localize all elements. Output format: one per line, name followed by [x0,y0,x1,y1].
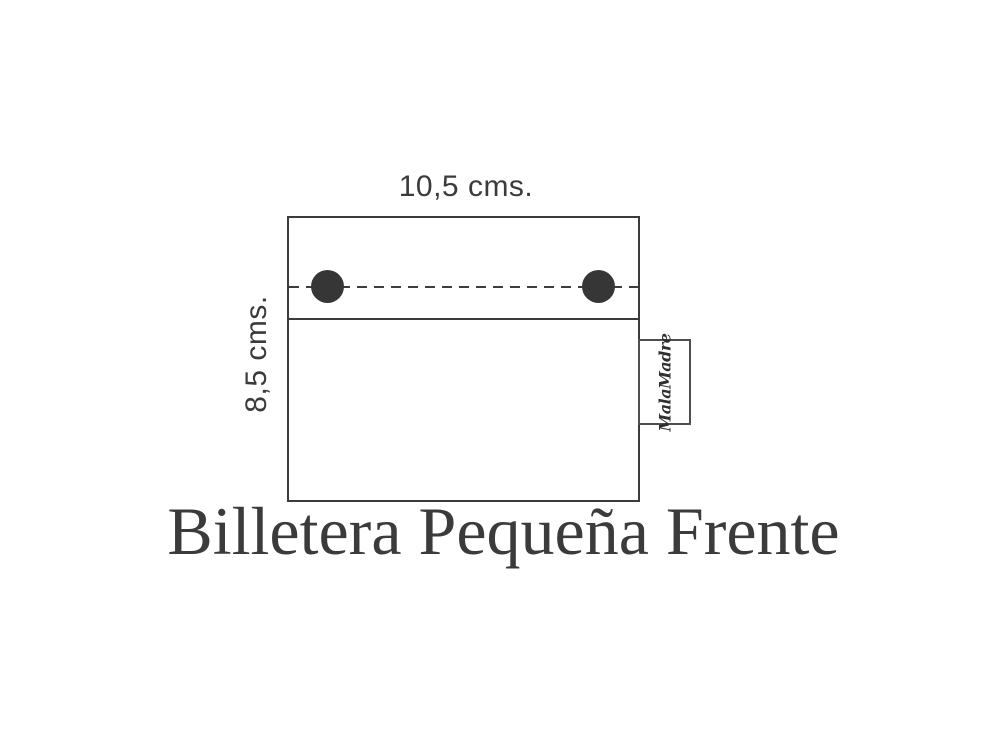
page-title: Billetera Pequeña Frente [0,497,1007,565]
height-dimension-label: 8,5 cms. [240,295,274,412]
snap-button-right-icon [582,270,615,303]
snap-button-left-icon [311,270,344,303]
brand-tag-label: MalaMadre [655,333,674,431]
flap-fold-line [289,318,638,320]
width-dimension-label: 10,5 cms. [287,170,645,204]
brand-tag: MalaMadre [638,339,691,425]
wallet-dimension-diagram: 10,5 cms. 8,5 cms. MalaMadre Billetera P… [0,0,1007,755]
wallet-front-outline [287,216,640,502]
